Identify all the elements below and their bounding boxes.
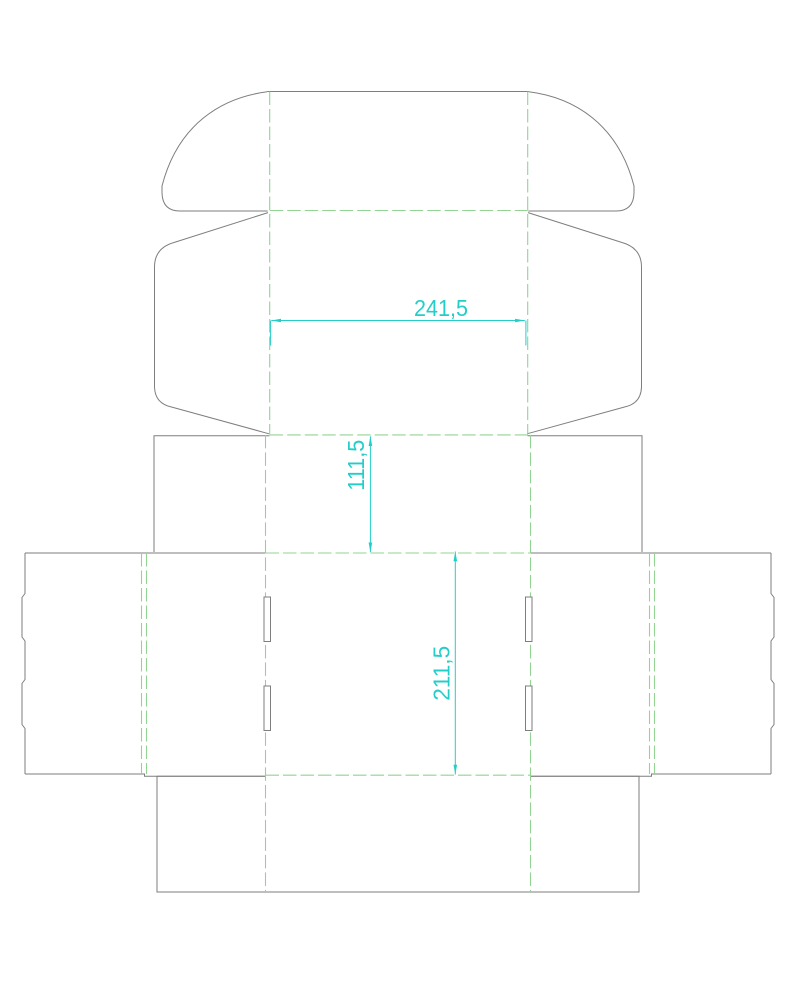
svg-text:211,5: 211,5 [429,646,455,701]
svg-text:241,5: 241,5 [414,295,468,321]
svg-text:111,5: 111,5 [343,440,369,491]
